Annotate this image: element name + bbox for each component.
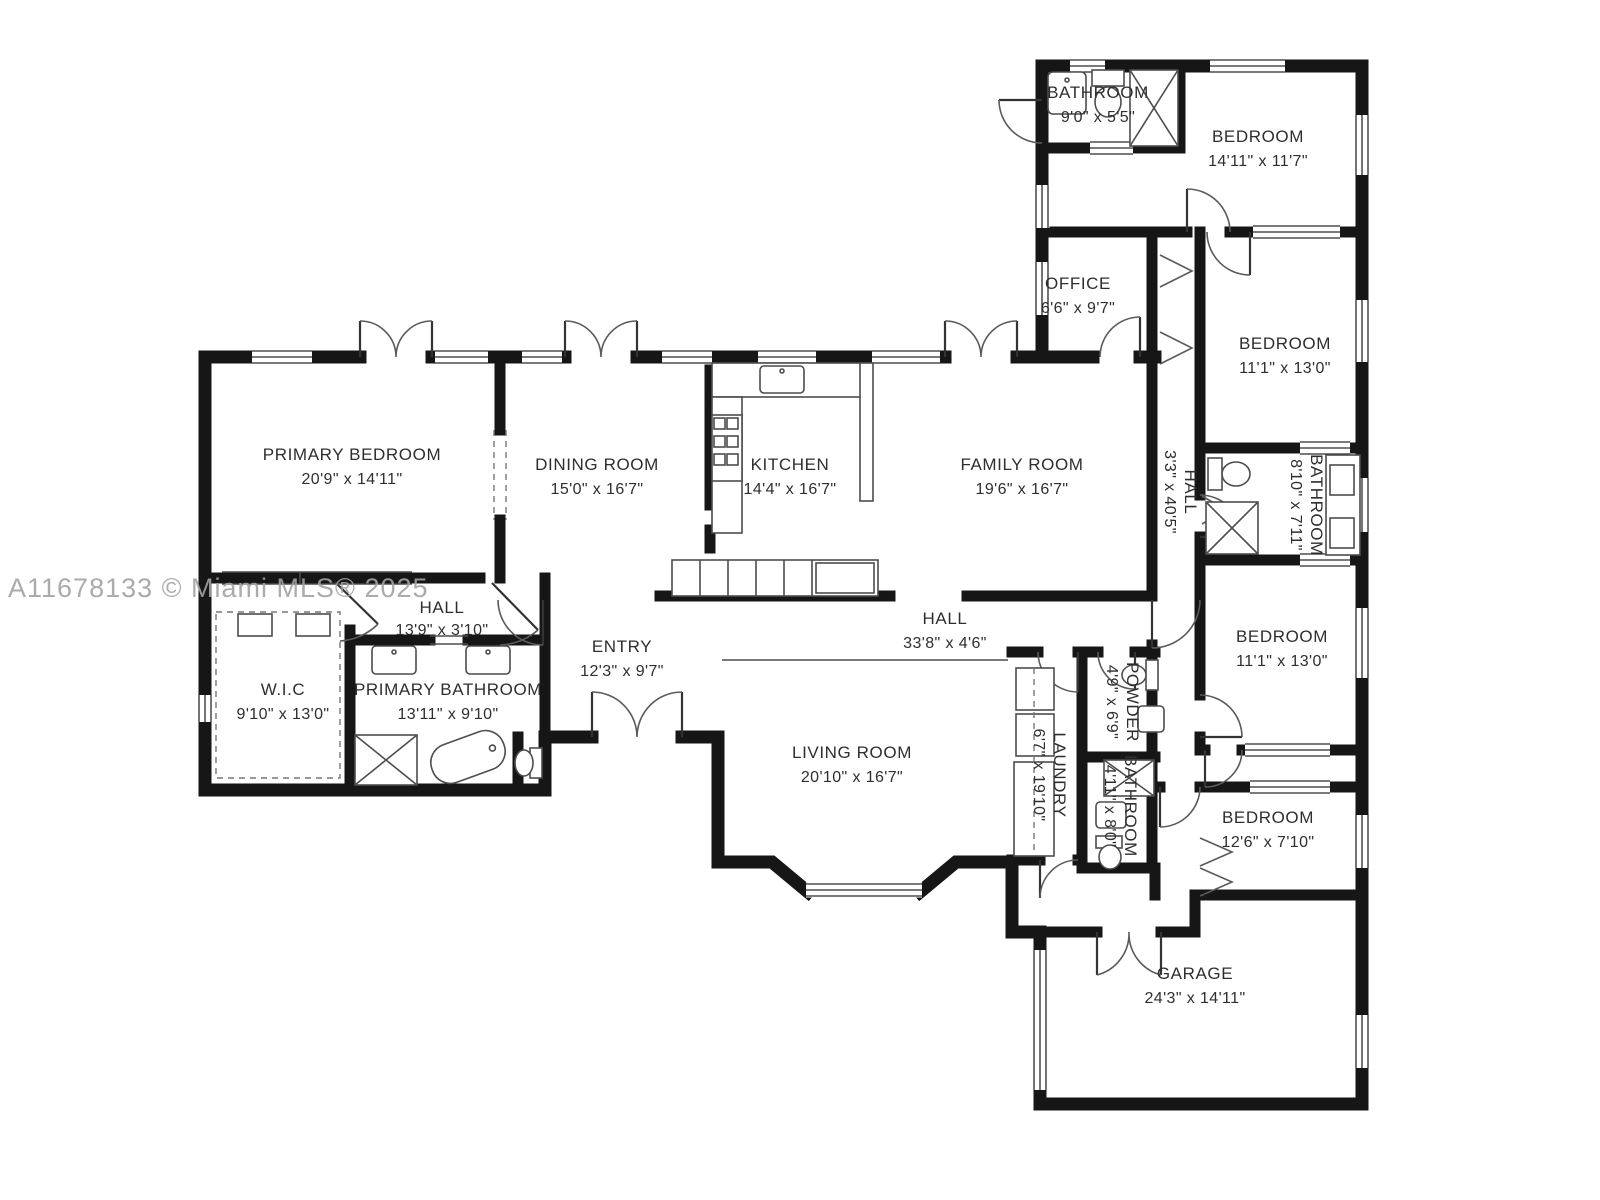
svg-text:14'11" x 11'7": 14'11" x 11'7" — [1208, 153, 1308, 170]
pantry-closet-icon — [672, 560, 878, 596]
svg-text:BEDROOM: BEDROOM — [1222, 808, 1314, 827]
svg-text:KITCHEN: KITCHEN — [751, 455, 830, 474]
room-label-entry: ENTRY12'3" x 9'7" — [580, 637, 664, 680]
svg-text:6'6" x 9'7": 6'6" x 9'7" — [1041, 300, 1115, 317]
svg-text:BEDROOM: BEDROOM — [1239, 334, 1331, 353]
svg-text:8'10" x 7'11": 8'10" x 7'11" — [1287, 459, 1304, 551]
primary-bath-shower-icon — [355, 735, 417, 785]
svg-text:13'9" x 3'10": 13'9" x 3'10" — [396, 622, 489, 639]
svg-text:4'9" x 6'9": 4'9" x 6'9" — [1103, 665, 1120, 739]
svg-text:GARAGE: GARAGE — [1157, 964, 1233, 983]
room-label-hall-e: HALL3'3" x 40'5" — [1161, 450, 1200, 534]
svg-text:19'6" x 16'7": 19'6" x 16'7" — [976, 481, 1069, 498]
room-label-bedroom-se: BEDROOM12'6" x 7'10" — [1222, 808, 1315, 851]
room-label-dining-room: DINING ROOM15'0" x 16'7" — [535, 455, 659, 498]
svg-text:DINING ROOM: DINING ROOM — [535, 455, 659, 474]
svg-text:14'4" x 16'7": 14'4" x 16'7" — [744, 481, 837, 498]
svg-text:PRIMARY BATHROOM: PRIMARY BATHROOM — [354, 680, 542, 699]
svg-text:HALL: HALL — [923, 609, 968, 628]
svg-text:ENTRY: ENTRY — [592, 637, 652, 656]
room-label-bedroom-ne: BEDROOM14'11" x 11'7" — [1208, 127, 1308, 170]
svg-text:12'3" x 9'7": 12'3" x 9'7" — [580, 663, 664, 680]
primary-bath-tub-icon — [425, 725, 510, 789]
kitchen-stove-icon — [712, 415, 742, 481]
svg-text:POWDER: POWDER — [1123, 662, 1142, 742]
primary-bath-sink-icon — [372, 646, 416, 674]
bathroom-e-shower-icon — [1206, 502, 1258, 554]
svg-text:20'10" x 16'7": 20'10" x 16'7" — [801, 769, 903, 786]
svg-text:9'10" x 13'0": 9'10" x 13'0" — [237, 706, 330, 723]
room-label-bedroom-e2: BEDROOM11'1" x 13'0" — [1236, 627, 1328, 670]
svg-text:13'11" x 9'10": 13'11" x 9'10" — [397, 706, 498, 723]
room-label-primary-bathroom: PRIMARY BATHROOM13'11" x 9'10" — [354, 680, 542, 723]
svg-text:11'1" x 13'0": 11'1" x 13'0" — [1236, 653, 1328, 670]
svg-text:3'3" x 40'5": 3'3" x 40'5" — [1161, 450, 1178, 534]
room-label-bathroom-e: BATHROOM8'10" x 7'11" — [1287, 454, 1326, 556]
svg-text:24'3" x 14'11": 24'3" x 14'11" — [1144, 990, 1245, 1007]
bathroom-e-vanity-icon — [1326, 455, 1360, 555]
watermark: A11678133 © Miami MLS® 2025 — [8, 573, 429, 603]
room-label-hall-main: HALL33'8" x 4'6" — [903, 609, 987, 652]
svg-text:LAUNDRY: LAUNDRY — [1050, 732, 1069, 817]
room-label-primary-bedroom: PRIMARY BEDROOM20'9" x 14'11" — [263, 445, 441, 488]
room-label-office: OFFICE6'6" x 9'7" — [1041, 274, 1115, 317]
svg-text:FAMILY ROOM: FAMILY ROOM — [960, 455, 1083, 474]
floor-plan: BATHROOM9'0" x 5'5" BEDROOM14'11" x 11'7… — [0, 0, 1600, 1200]
svg-text:20'9" x 14'11": 20'9" x 14'11" — [301, 471, 402, 488]
bathroom-e-toilet-icon — [1208, 458, 1250, 490]
svg-text:BATHROOM: BATHROOM — [1121, 755, 1140, 857]
svg-text:LIVING ROOM: LIVING ROOM — [792, 743, 912, 762]
room-label-family-room: FAMILY ROOM19'6" x 16'7" — [960, 455, 1083, 498]
svg-text:BEDROOM: BEDROOM — [1236, 627, 1328, 646]
svg-text:HALL: HALL — [1181, 470, 1200, 515]
room-label-kitchen: KITCHEN14'4" x 16'7" — [744, 455, 837, 498]
room-label-garage: GARAGE24'3" x 14'11" — [1144, 964, 1245, 1007]
svg-text:4'11" x 8'0": 4'11" x 8'0" — [1101, 765, 1118, 847]
svg-text:BATHROOM: BATHROOM — [1307, 454, 1326, 556]
bathroom-top-shower-icon — [1130, 70, 1178, 146]
room-label-bedroom-e1: BEDROOM11'1" x 13'0" — [1239, 334, 1331, 377]
svg-text:9'0" x 5'5": 9'0" x 5'5" — [1061, 109, 1135, 126]
svg-text:15'0" x 16'7": 15'0" x 16'7" — [551, 481, 644, 498]
svg-text:BATHROOM: BATHROOM — [1047, 83, 1149, 102]
svg-text:BEDROOM: BEDROOM — [1212, 127, 1304, 146]
floor-plan-page: BATHROOM9'0" x 5'5" BEDROOM14'11" x 11'7… — [0, 0, 1600, 1200]
svg-text:OFFICE: OFFICE — [1045, 274, 1111, 293]
svg-text:12'6" x 7'10": 12'6" x 7'10" — [1222, 834, 1315, 851]
svg-text:W.I.C: W.I.C — [261, 680, 306, 699]
svg-text:11'1" x 13'0": 11'1" x 13'0" — [1239, 360, 1331, 377]
primary-bath-sink2-icon — [466, 646, 510, 674]
primary-bath-toilet-icon — [515, 748, 542, 778]
room-label-living-room: LIVING ROOM20'10" x 16'7" — [792, 743, 912, 786]
svg-text:33'8" x 4'6": 33'8" x 4'6" — [903, 635, 987, 652]
room-label-hall-w: HALL13'9" x 3'10" — [396, 598, 489, 639]
room-label-wic: W.I.C9'10" x 13'0" — [237, 680, 330, 723]
svg-text:PRIMARY BEDROOM: PRIMARY BEDROOM — [263, 445, 441, 464]
svg-text:6'7" x 19'10": 6'7" x 19'10" — [1030, 729, 1047, 822]
